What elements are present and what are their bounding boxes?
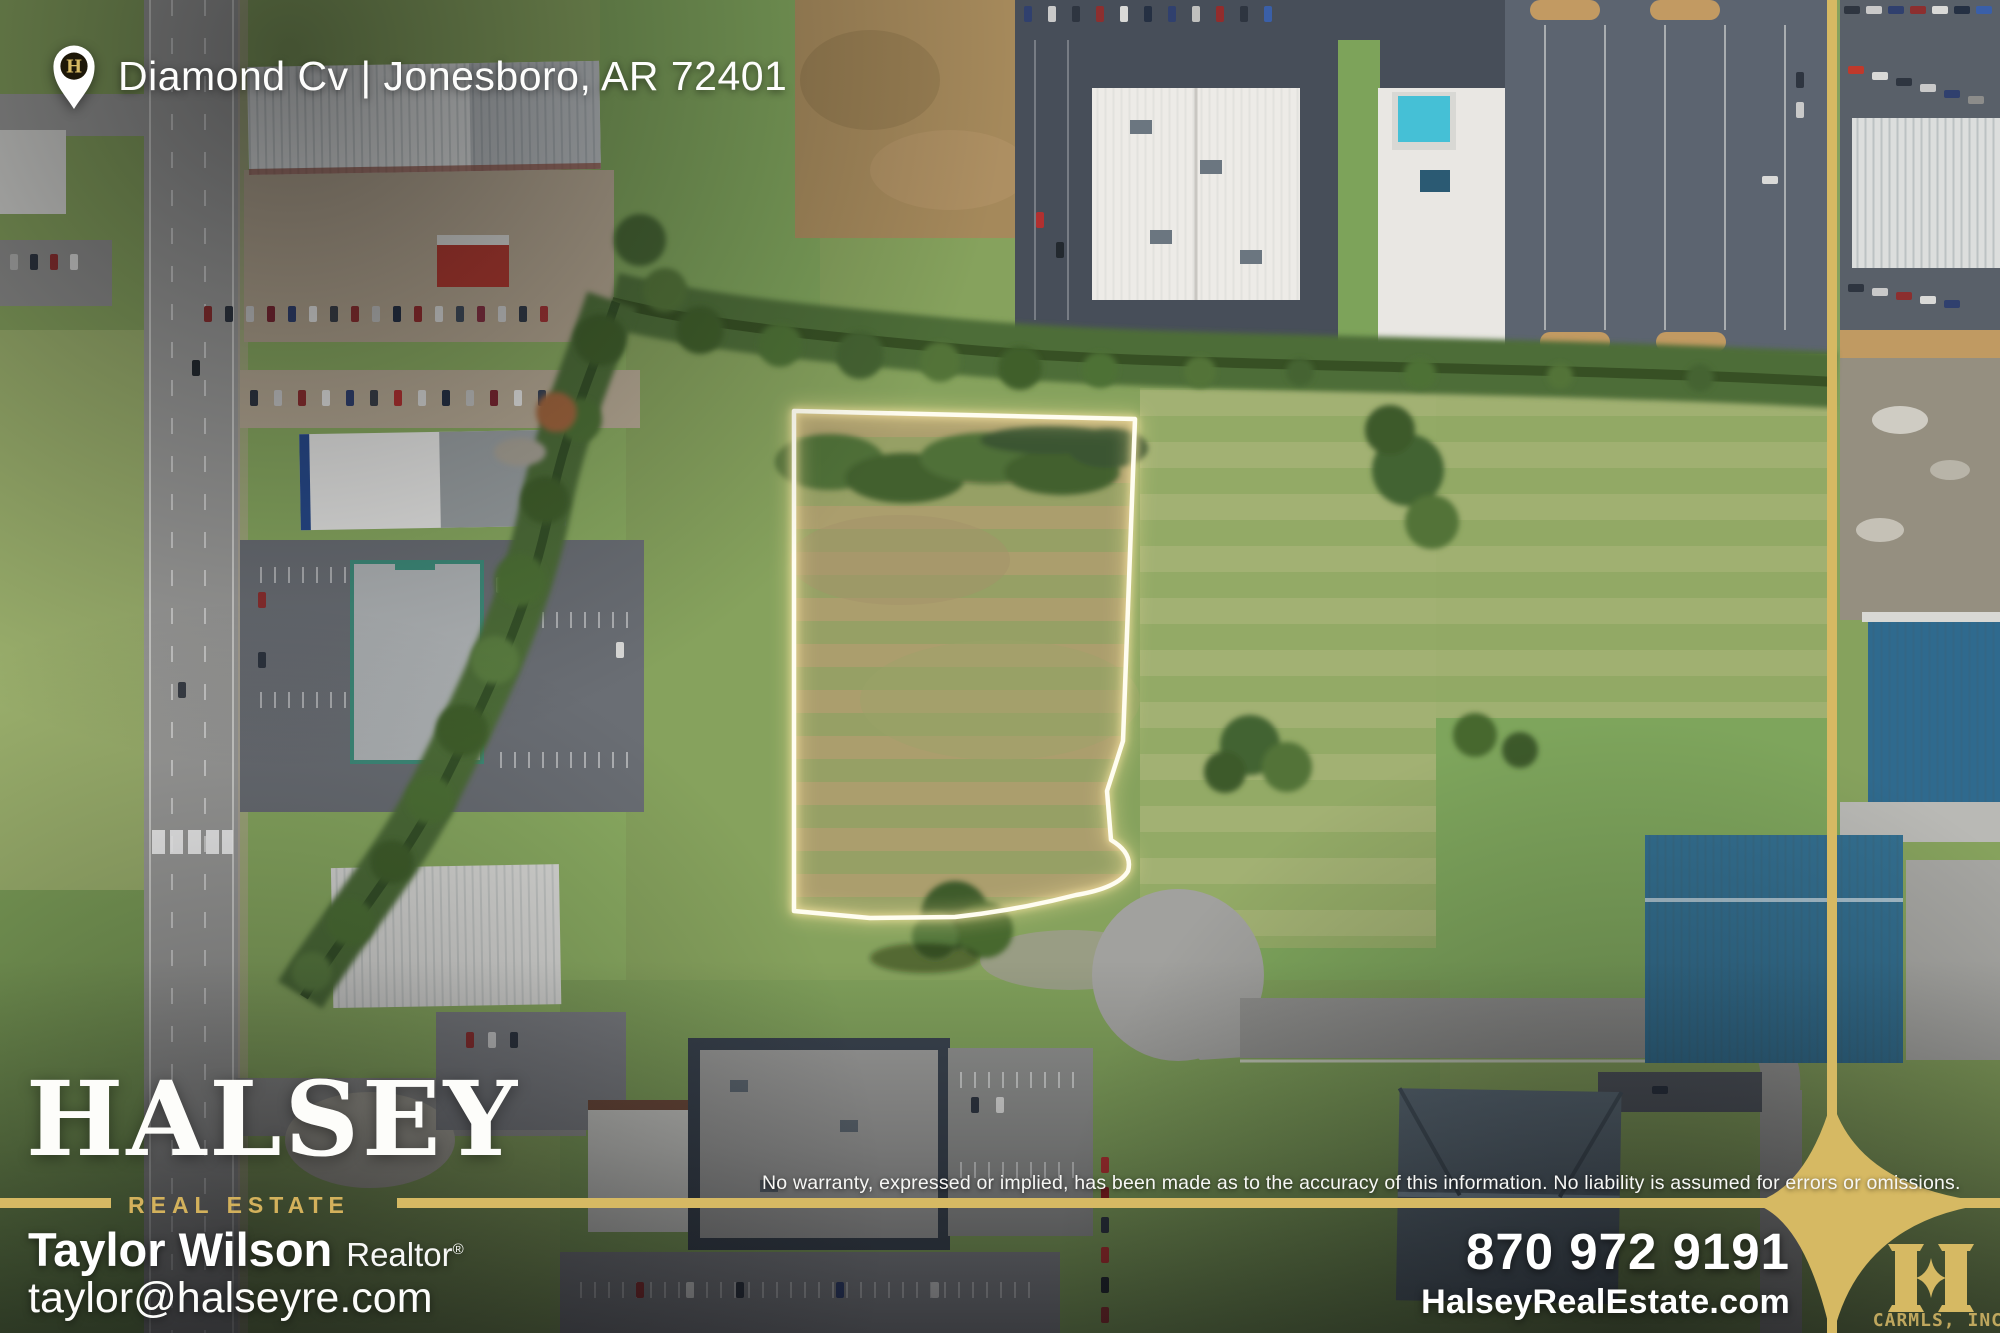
brand-tagline: REAL ESTATE [128, 1192, 350, 1219]
property-address: Diamond Cv | Jonesboro, AR 72401 [118, 53, 787, 100]
phone-number: 870 972 9191 [1421, 1224, 1790, 1279]
listing-flyer: H Diamond Cv | Jonesboro, AR 72401 HALSE… [0, 0, 2000, 1333]
brand-logo: HALSEY [26, 1068, 520, 1171]
registered-mark: ® [453, 1241, 464, 1258]
agent-email: taylor@halseyre.com [28, 1274, 433, 1323]
disclaimer-text: No warranty, expressed or implied, has b… [762, 1172, 1961, 1195]
map-pin-icon: H [46, 34, 102, 118]
website-url: HalseyRealEstate.com [1421, 1283, 1790, 1322]
agent-name: Taylor Wilson [28, 1222, 332, 1277]
agent-title: Realtor® [346, 1236, 463, 1274]
mls-watermark: CARMLS, INC [1873, 1310, 2000, 1331]
pin-monogram: H [66, 58, 82, 78]
contact-block: 870 972 9191 HalseyRealEstate.com [1421, 1224, 1790, 1322]
location-bar: H Diamond Cv | Jonesboro, AR 72401 [46, 34, 787, 118]
agent-line: Taylor Wilson Realtor® [28, 1222, 464, 1277]
